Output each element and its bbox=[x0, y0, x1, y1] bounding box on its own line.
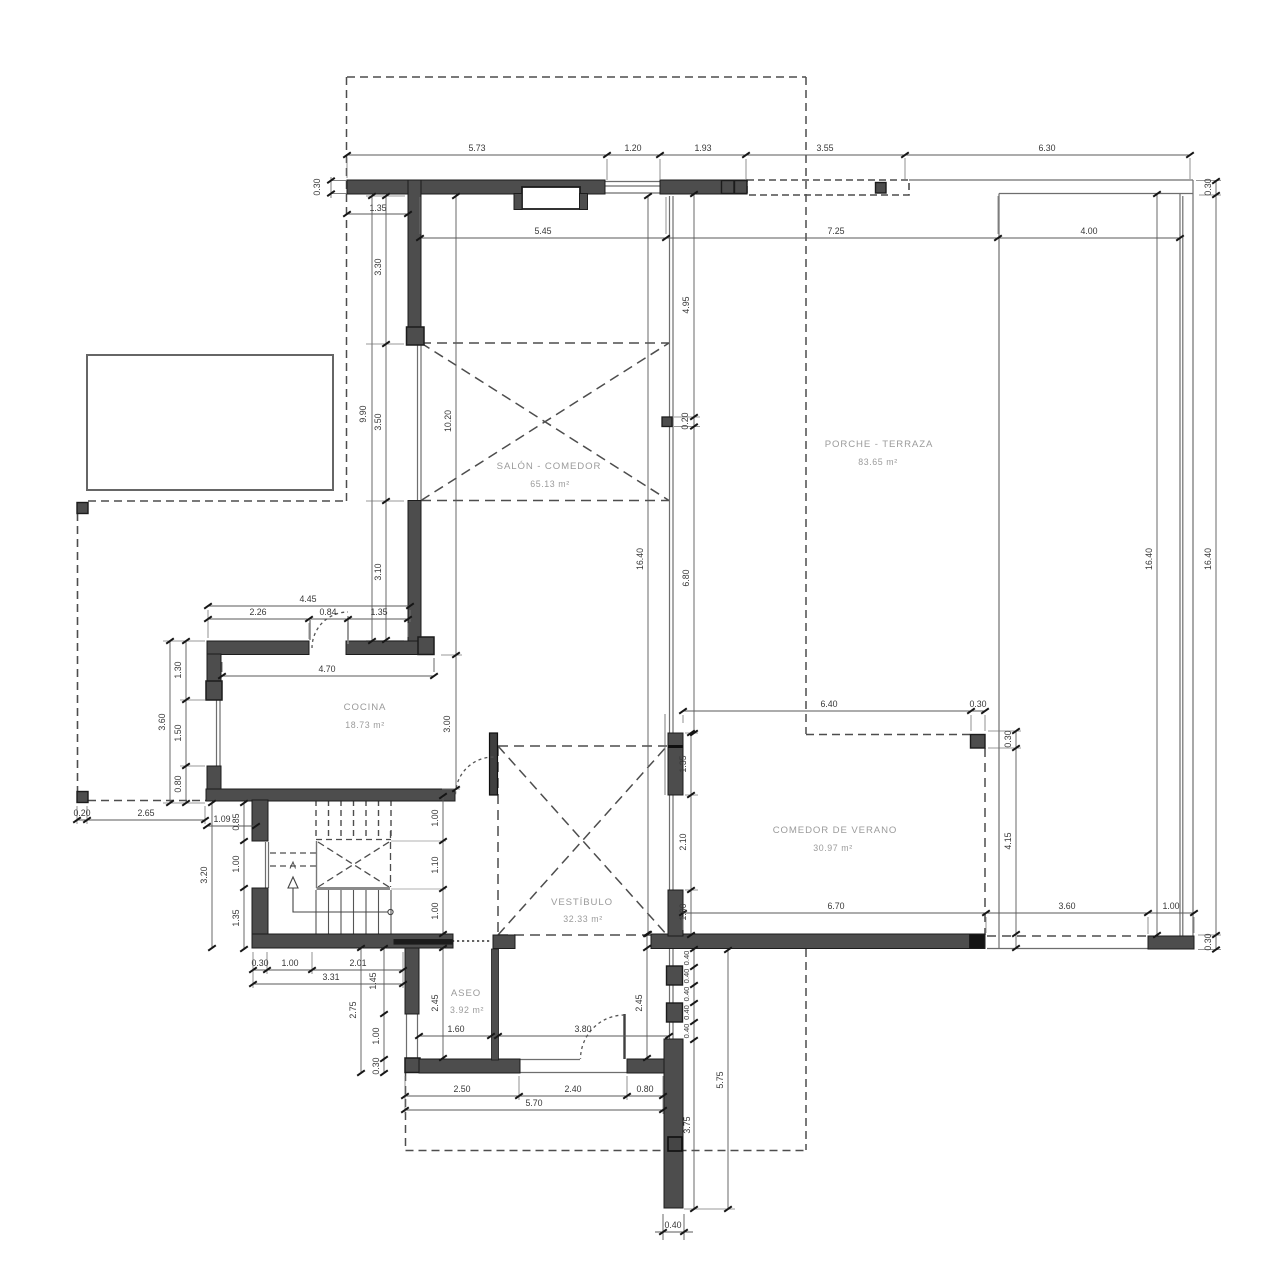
svg-text:1.00: 1.00 bbox=[371, 1027, 381, 1044]
svg-text:1.09: 1.09 bbox=[213, 814, 230, 824]
svg-text:0.40: 0.40 bbox=[682, 969, 691, 984]
svg-text:3.92 m²: 3.92 m² bbox=[450, 1005, 484, 1015]
svg-text:3.60: 3.60 bbox=[157, 713, 167, 730]
svg-text:0.30: 0.30 bbox=[1003, 730, 1013, 747]
svg-text:0.20: 0.20 bbox=[680, 412, 690, 429]
svg-text:2.65: 2.65 bbox=[137, 808, 154, 818]
svg-text:3.20: 3.20 bbox=[199, 866, 209, 883]
svg-text:3.60: 3.60 bbox=[1058, 901, 1075, 911]
svg-text:5.75: 5.75 bbox=[715, 1071, 725, 1088]
svg-text:0.40: 0.40 bbox=[682, 1005, 691, 1020]
svg-text:1.35: 1.35 bbox=[370, 607, 387, 617]
svg-text:1.30: 1.30 bbox=[173, 661, 183, 678]
svg-text:0.80: 0.80 bbox=[173, 775, 183, 792]
svg-text:3.55: 3.55 bbox=[816, 143, 833, 153]
svg-text:1.00: 1.00 bbox=[1162, 901, 1179, 911]
svg-text:3.31: 3.31 bbox=[322, 972, 339, 982]
svg-text:30.97 m²: 30.97 m² bbox=[813, 843, 853, 853]
svg-text:3.30: 3.30 bbox=[373, 258, 383, 275]
svg-text:1.00: 1.00 bbox=[231, 855, 241, 872]
svg-text:9.90: 9.90 bbox=[358, 405, 368, 422]
svg-text:0.80: 0.80 bbox=[636, 1084, 653, 1094]
svg-text:1.00: 1.00 bbox=[281, 958, 298, 968]
svg-text:0.40: 0.40 bbox=[664, 1220, 681, 1230]
svg-text:0.84: 0.84 bbox=[319, 607, 336, 617]
svg-text:1.00: 1.00 bbox=[430, 809, 440, 826]
svg-text:0.30: 0.30 bbox=[251, 958, 268, 968]
svg-text:2.45: 2.45 bbox=[430, 994, 440, 1011]
svg-text:PORCHE - TERRAZA: PORCHE - TERRAZA bbox=[825, 439, 934, 450]
svg-text:0.85: 0.85 bbox=[231, 813, 241, 830]
svg-text:COMEDOR DE VERANO: COMEDOR DE VERANO bbox=[773, 825, 898, 836]
svg-text:5.45: 5.45 bbox=[534, 226, 551, 236]
svg-text:0.40: 0.40 bbox=[682, 951, 691, 966]
svg-text:4.15: 4.15 bbox=[1003, 832, 1013, 849]
svg-text:1.93: 1.93 bbox=[694, 143, 711, 153]
svg-text:3.00: 3.00 bbox=[442, 715, 452, 732]
svg-text:7.25: 7.25 bbox=[827, 226, 844, 236]
svg-text:32.33 m²: 32.33 m² bbox=[563, 914, 603, 924]
svg-text:4.45: 4.45 bbox=[299, 594, 316, 604]
svg-text:COCINA: COCINA bbox=[344, 702, 387, 713]
svg-text:ASEO: ASEO bbox=[451, 988, 481, 999]
svg-text:16.40: 16.40 bbox=[1203, 548, 1213, 570]
svg-text:16.40: 16.40 bbox=[635, 548, 645, 570]
svg-text:6.40: 6.40 bbox=[820, 699, 837, 709]
svg-text:2.45: 2.45 bbox=[634, 994, 644, 1011]
svg-text:3.50: 3.50 bbox=[373, 413, 383, 430]
svg-text:0.40: 0.40 bbox=[682, 1024, 691, 1039]
svg-text:0.30: 0.30 bbox=[1203, 933, 1213, 950]
svg-text:3.10: 3.10 bbox=[373, 563, 383, 580]
svg-text:3.75: 3.75 bbox=[682, 1116, 692, 1133]
svg-text:6.80: 6.80 bbox=[681, 569, 691, 586]
svg-text:2.75: 2.75 bbox=[348, 1001, 358, 1018]
svg-text:4.00: 4.00 bbox=[1080, 226, 1097, 236]
svg-text:10.20: 10.20 bbox=[443, 410, 453, 432]
svg-text:3.80: 3.80 bbox=[574, 1024, 591, 1034]
svg-text:6.30: 6.30 bbox=[1038, 143, 1055, 153]
svg-text:2.10: 2.10 bbox=[678, 833, 688, 850]
svg-text:18.73 m²: 18.73 m² bbox=[345, 720, 385, 730]
svg-text:1.60: 1.60 bbox=[447, 1024, 464, 1034]
svg-text:4.95: 4.95 bbox=[681, 296, 691, 313]
svg-text:2.26: 2.26 bbox=[249, 607, 266, 617]
svg-text:0.30: 0.30 bbox=[969, 699, 986, 709]
svg-text:1.35: 1.35 bbox=[231, 909, 241, 926]
svg-text:SALÓN - COMEDOR: SALÓN - COMEDOR bbox=[497, 461, 602, 472]
svg-text:1.35: 1.35 bbox=[369, 203, 386, 213]
svg-text:65.13 m²: 65.13 m² bbox=[530, 479, 570, 489]
svg-text:1.20: 1.20 bbox=[624, 143, 641, 153]
svg-text:1.35: 1.35 bbox=[678, 755, 688, 772]
svg-text:2.40: 2.40 bbox=[564, 1084, 581, 1094]
svg-text:83.65 m²: 83.65 m² bbox=[858, 457, 898, 467]
svg-text:1.45: 1.45 bbox=[368, 972, 378, 989]
svg-text:VESTÍBULO: VESTÍBULO bbox=[551, 897, 613, 908]
svg-text:0.30: 0.30 bbox=[371, 1057, 381, 1074]
svg-text:4.70: 4.70 bbox=[318, 664, 335, 674]
svg-text:16.40: 16.40 bbox=[1144, 548, 1154, 570]
svg-text:0.40: 0.40 bbox=[682, 987, 691, 1002]
svg-text:5.70: 5.70 bbox=[525, 1098, 542, 1108]
svg-text:0.30: 0.30 bbox=[312, 178, 322, 195]
svg-text:0.20: 0.20 bbox=[73, 808, 90, 818]
svg-text:1.10: 1.10 bbox=[430, 856, 440, 873]
svg-text:6.70: 6.70 bbox=[827, 901, 844, 911]
svg-text:1.00: 1.00 bbox=[430, 902, 440, 919]
svg-text:2.50: 2.50 bbox=[453, 1084, 470, 1094]
svg-text:2.01: 2.01 bbox=[349, 958, 366, 968]
svg-text:0.30: 0.30 bbox=[1203, 178, 1213, 195]
svg-text:1.50: 1.50 bbox=[173, 724, 183, 741]
svg-text:5.73: 5.73 bbox=[468, 143, 485, 153]
svg-text:1.00: 1.00 bbox=[678, 903, 688, 920]
